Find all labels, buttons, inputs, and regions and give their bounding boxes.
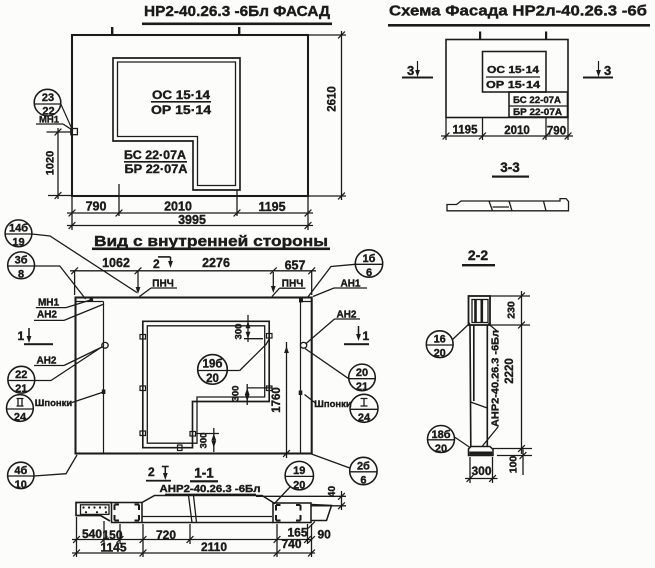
- svg-text:БР 22-07А: БР 22-07А: [513, 107, 563, 117]
- svg-text:1145: 1145: [100, 541, 126, 555]
- svg-text:300: 300: [471, 464, 491, 478]
- svg-text:6: 6: [366, 267, 372, 279]
- svg-text:14б: 14б: [9, 223, 28, 235]
- svg-text:АНР2-40.26.3 -6Бл: АНР2-40.26.3 -6Бл: [491, 330, 502, 427]
- svg-text:24: 24: [14, 412, 27, 424]
- svg-text:16: 16: [434, 334, 446, 346]
- svg-text:3995: 3995: [178, 213, 206, 227]
- svg-text:790: 790: [86, 200, 107, 214]
- svg-text:2б: 2б: [357, 461, 370, 473]
- svg-text:АН2: АН2: [37, 310, 57, 321]
- svg-text:1: 1: [18, 329, 25, 343]
- svg-text:1760: 1760: [271, 387, 283, 413]
- svg-text:2010: 2010: [504, 125, 530, 137]
- svg-text:МН1: МН1: [38, 298, 60, 309]
- svg-text:19: 19: [293, 465, 305, 477]
- svg-text:1-1: 1-1: [194, 466, 214, 481]
- svg-text:740: 740: [281, 537, 301, 551]
- svg-text:Шпонки: Шпонки: [35, 398, 73, 409]
- svg-text:720: 720: [156, 528, 176, 542]
- svg-text:23: 23: [42, 92, 54, 104]
- svg-text:1195: 1195: [453, 125, 479, 137]
- svg-text:300: 300: [231, 386, 242, 402]
- svg-text:1195: 1195: [258, 200, 285, 214]
- svg-text:2276: 2276: [202, 256, 230, 270]
- svg-text:2: 2: [153, 257, 160, 271]
- svg-text:3: 3: [604, 63, 611, 78]
- svg-text:22: 22: [15, 369, 27, 381]
- svg-text:6: 6: [360, 475, 366, 487]
- svg-text:21: 21: [15, 383, 27, 395]
- svg-text:3б: 3б: [15, 255, 28, 267]
- svg-text:2010: 2010: [164, 200, 192, 214]
- svg-text:100: 100: [508, 456, 520, 474]
- svg-text:2110: 2110: [201, 540, 227, 554]
- svg-text:НР2-40.26.3 -6Бл ФАСАД: НР2-40.26.3 -6Бл ФАСАД: [144, 4, 331, 20]
- svg-text:1062: 1062: [102, 256, 130, 270]
- svg-text:3-3: 3-3: [500, 160, 520, 175]
- svg-text:Шпонки: Шпонки: [314, 399, 352, 410]
- svg-text:АНР2-40.26.3 -6Бл: АНР2-40.26.3 -6Бл: [160, 484, 261, 495]
- svg-text:БР 22·07А: БР 22·07А: [125, 162, 188, 176]
- svg-text:1020: 1020: [45, 151, 57, 175]
- svg-text:24: 24: [358, 412, 371, 424]
- svg-text:19б: 19б: [203, 359, 223, 371]
- svg-text:1: 1: [363, 329, 370, 343]
- svg-text:20: 20: [293, 480, 305, 492]
- svg-text:300: 300: [199, 433, 210, 449]
- svg-text:4б: 4б: [14, 465, 27, 477]
- svg-text:540: 540: [82, 527, 102, 541]
- svg-text:БС 22-07А: БС 22-07А: [513, 95, 562, 105]
- svg-text:20: 20: [356, 367, 368, 379]
- svg-text:ОР 15·14: ОР 15·14: [151, 103, 211, 117]
- svg-text:21: 21: [356, 381, 368, 393]
- svg-text:3: 3: [407, 63, 414, 78]
- svg-text:18б: 18б: [431, 429, 450, 441]
- svg-text:2220: 2220: [504, 358, 516, 384]
- svg-text:ОС 15·14: ОС 15·14: [152, 88, 210, 102]
- svg-text:20: 20: [206, 373, 219, 385]
- svg-text:ОС 15·14: ОС 15·14: [487, 65, 540, 76]
- svg-text:657: 657: [285, 259, 306, 273]
- svg-text:230: 230: [506, 301, 518, 319]
- svg-text:Схема Фасада НР2л-40.26.3 -6б: Схема Фасада НР2л-40.26.3 -6б: [389, 4, 647, 20]
- svg-text:20: 20: [434, 348, 446, 360]
- svg-text:19: 19: [12, 237, 24, 249]
- svg-text:790: 790: [547, 126, 566, 138]
- svg-text:2: 2: [148, 465, 155, 479]
- svg-text:2610: 2610: [327, 86, 339, 112]
- svg-text:БС 22·07А: БС 22·07А: [124, 148, 186, 162]
- svg-text:40: 40: [327, 486, 338, 498]
- svg-text:1б: 1б: [363, 253, 376, 265]
- svg-text:90: 90: [318, 528, 332, 542]
- svg-text:8: 8: [18, 269, 24, 281]
- svg-text:ОР 15·14: ОР 15·14: [486, 80, 541, 91]
- svg-text:2-2: 2-2: [468, 247, 488, 263]
- svg-text:10: 10: [15, 479, 27, 491]
- svg-text:20: 20: [435, 443, 447, 455]
- svg-text:300: 300: [234, 324, 245, 340]
